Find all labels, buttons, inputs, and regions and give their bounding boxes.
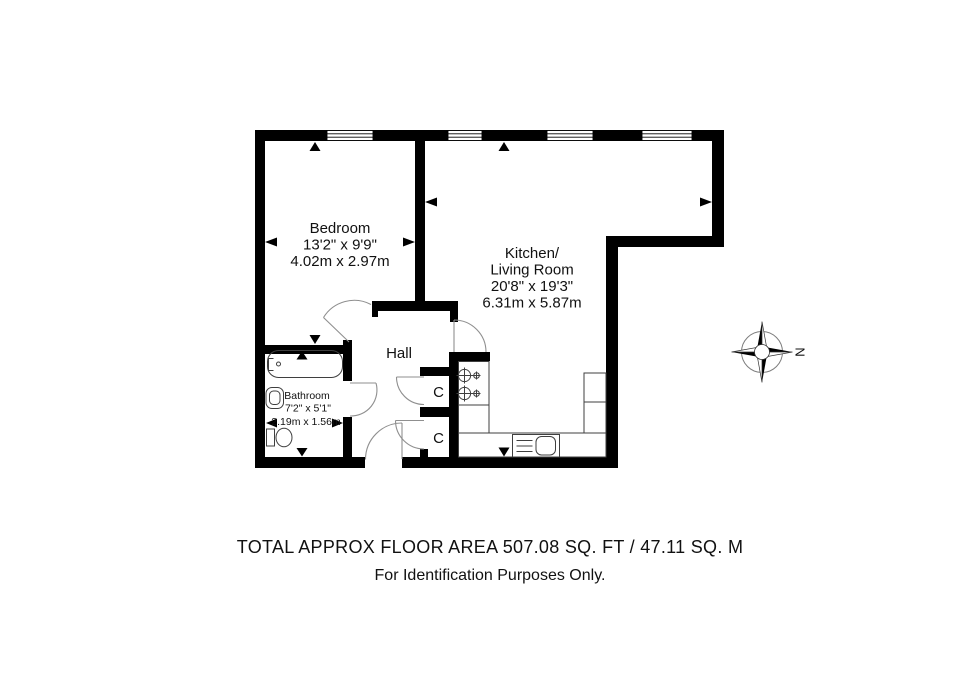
bathroom-name: Bathroom (284, 390, 330, 402)
wall-step (606, 236, 724, 247)
wall-hall-top-left-nub (372, 301, 378, 317)
kitchen-name-line2: Living Room (490, 262, 573, 279)
floor-plan-drawing: Bedroom 13'2" x 9'9" 4.02m x 2.97m Kitch… (0, 0, 980, 692)
north-label: N (792, 347, 807, 356)
wall-bedroom-divider (415, 141, 425, 304)
window-kitchen-3 (642, 131, 692, 141)
wall-right-lower (606, 236, 618, 468)
wall-hall-top (372, 301, 458, 311)
bathroom-size-metric: 2.19m x 1.56m (271, 416, 341, 428)
kitchen-name-line1: Kitchen/ (505, 245, 560, 262)
window-bedroom (327, 131, 373, 141)
wall-closet-top (420, 367, 450, 376)
closet-top-label: C (433, 384, 444, 401)
bathroom-size-imperial: 7'2" x 5'1" (285, 403, 331, 415)
page-background (0, 0, 980, 692)
closet-bottom-label: C (433, 430, 444, 447)
bedroom-size-imperial: 13'2" x 9'9" (303, 237, 377, 254)
compass-center (755, 345, 770, 360)
wall-left (255, 130, 265, 468)
wall-right-upper (712, 130, 724, 247)
wall-bottom-right (402, 457, 618, 468)
wall-kitchen-divider-horizontal (449, 352, 490, 361)
footer-disclaimer: For Identification Purposes Only. (375, 567, 606, 584)
window-kitchen-2 (547, 131, 593, 141)
kitchen-size-metric: 6.31m x 5.87m (482, 295, 581, 312)
bedroom-size-metric: 4.02m x 2.97m (290, 253, 389, 270)
floorplan-page: Bedroom 13'2" x 9'9" 4.02m x 2.97m Kitch… (0, 0, 980, 692)
wall-closet-middle (420, 407, 450, 417)
wall-closet-bottom-nub (420, 449, 428, 458)
window-kitchen-1 (448, 131, 482, 141)
wall-bathroom-right-lower (343, 417, 352, 468)
bedroom-name: Bedroom (310, 220, 371, 237)
wall-bathroom-right-upper (343, 345, 352, 381)
footer-area-line: TOTAL APPROX FLOOR AREA 507.08 SQ. FT / … (237, 537, 744, 557)
wall-kitchen-divider-vertical (449, 352, 458, 458)
hall-name: Hall (386, 345, 412, 362)
kitchen-size-imperial: 20'8" x 19'3" (491, 278, 573, 295)
wall-bathroom-top (265, 345, 352, 354)
